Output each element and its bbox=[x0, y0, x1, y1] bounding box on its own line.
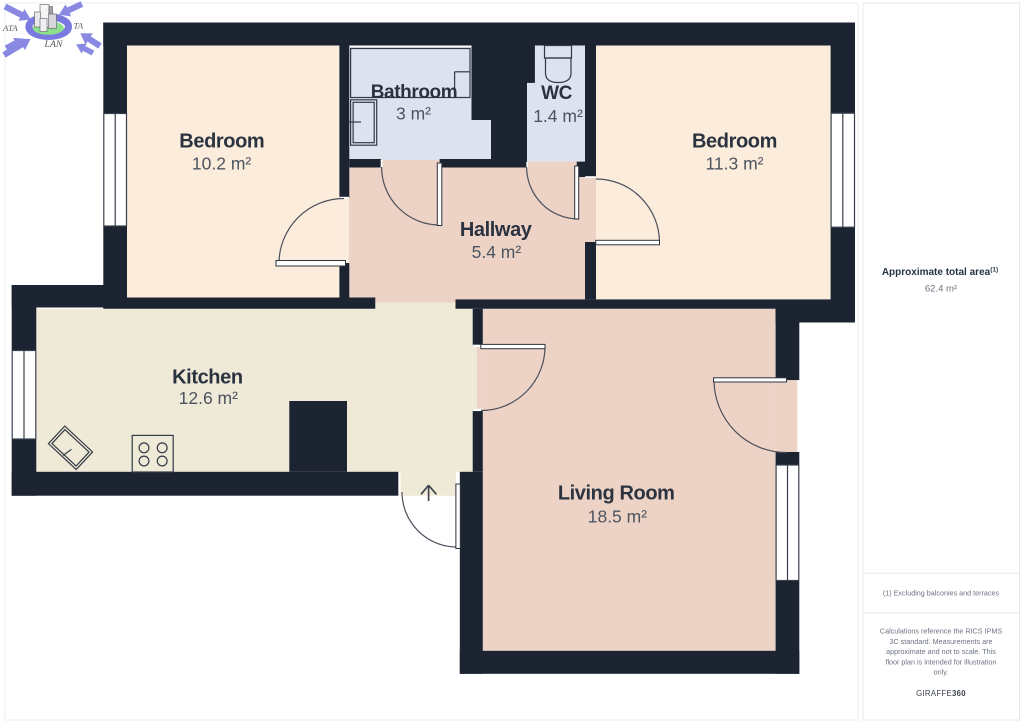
svg-text:(1) Excluding balconies and te: (1) Excluding balconies and terraces bbox=[883, 589, 1000, 598]
svg-text:Bedroom: Bedroom bbox=[692, 131, 777, 153]
svg-text:62.4 m²: 62.4 m² bbox=[925, 284, 957, 295]
svg-text:1.4 m²: 1.4 m² bbox=[533, 106, 583, 126]
svg-text:18.5 m²: 18.5 m² bbox=[588, 506, 647, 526]
svg-text:WC: WC bbox=[541, 83, 573, 104]
svg-text:Hallway: Hallway bbox=[460, 219, 533, 241]
svg-text:only.: only. bbox=[934, 668, 949, 677]
svg-text:Bathroom: Bathroom bbox=[371, 82, 458, 103]
svg-text:TA: TA bbox=[74, 20, 84, 30]
svg-text:Living Room: Living Room bbox=[558, 483, 675, 505]
svg-text:floor plan is intended for ill: floor plan is intended for illustration bbox=[885, 657, 996, 666]
svg-text:3C standard. Measurements are: 3C standard. Measurements are bbox=[889, 637, 992, 646]
svg-text:Calculations reference the RIC: Calculations reference the RICS IPMS bbox=[880, 627, 1002, 636]
svg-text:LAN: LAN bbox=[44, 39, 63, 50]
svg-text:10.2 m²: 10.2 m² bbox=[192, 154, 251, 174]
svg-text:approximate and not to scale.: approximate and not to scale. This bbox=[886, 647, 996, 656]
svg-text:3 m²: 3 m² bbox=[396, 103, 431, 123]
svg-text:Kitchen: Kitchen bbox=[172, 367, 243, 389]
svg-text:ATA: ATA bbox=[2, 23, 18, 33]
svg-text:12.6 m²: 12.6 m² bbox=[179, 388, 238, 408]
svg-text:11.3 m²: 11.3 m² bbox=[705, 154, 763, 174]
svg-text:Approximate total area(1): Approximate total area(1) bbox=[882, 267, 998, 279]
svg-text:Bedroom: Bedroom bbox=[179, 131, 264, 153]
svg-text:5.4 m²: 5.4 m² bbox=[472, 242, 522, 262]
svg-text:GIRAFFE360: GIRAFFE360 bbox=[916, 689, 966, 698]
